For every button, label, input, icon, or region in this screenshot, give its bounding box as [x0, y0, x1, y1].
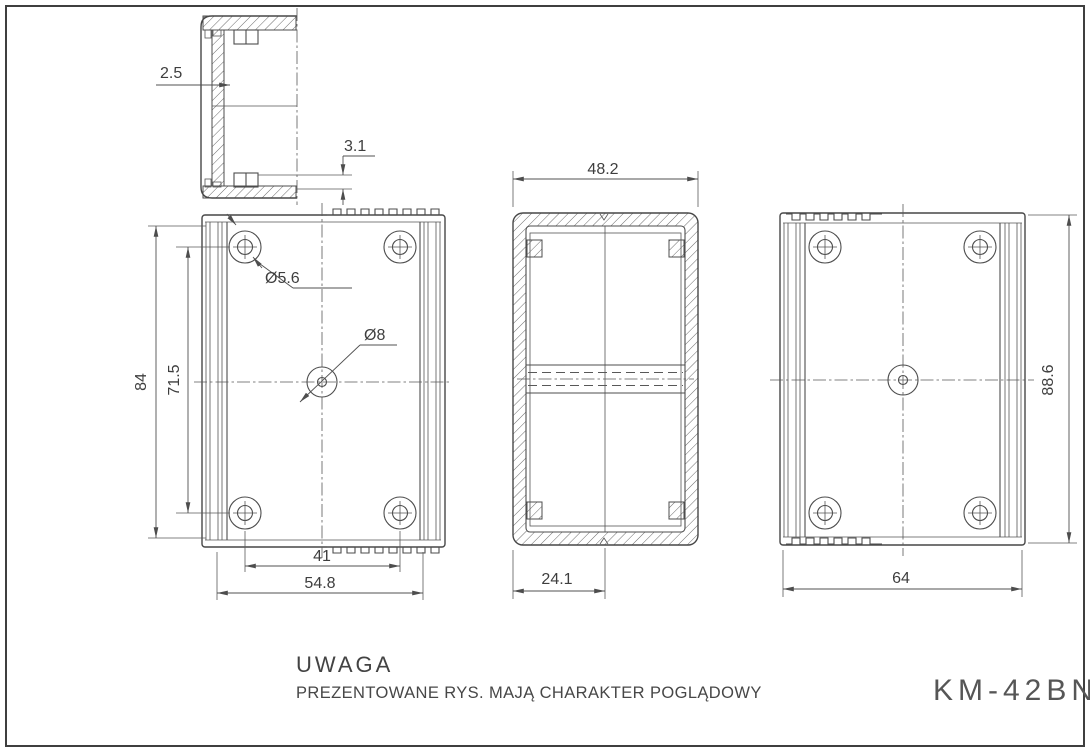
- dim-label: 41: [313, 548, 331, 565]
- internal-partition: [517, 365, 694, 393]
- side-ribs-left: [206, 222, 227, 540]
- dim-label: 54.8: [304, 575, 335, 592]
- vent-serration-bottom: [786, 538, 882, 544]
- model-number: KM-42BN: [933, 674, 1090, 707]
- dim-overall-height: 88.6: [1028, 215, 1077, 543]
- screw-boss: [527, 502, 542, 519]
- dim-base-to-center: 24.1: [513, 548, 605, 599]
- screw-boss: [669, 240, 684, 257]
- dim-label: 71.5: [166, 364, 183, 395]
- screw-boss: [669, 502, 684, 519]
- screw-hole: [384, 497, 416, 529]
- screw-hole: [964, 497, 996, 529]
- dim-label: Ø8: [364, 327, 385, 344]
- screw-hole: [384, 231, 416, 263]
- dim-hole-pitch-vertical: 71.5: [166, 247, 230, 513]
- dim-center-hole: Ø8: [300, 327, 397, 402]
- dim-overall-depth: 48.2: [513, 161, 698, 207]
- dim-label: 88.6: [1040, 364, 1057, 395]
- dim-label: Ø5.6: [265, 270, 300, 287]
- screw-hole: [229, 497, 261, 529]
- section-side-wall: [212, 30, 224, 186]
- side-ribs-right: [420, 222, 440, 540]
- screw-hole: [809, 497, 841, 529]
- dim-label: 84: [133, 373, 150, 391]
- note-title: UWAGA: [296, 652, 393, 677]
- technical-drawing-canvas: 2.5 3.1: [0, 0, 1090, 752]
- screw-hole: [229, 231, 261, 263]
- dim-corner-hole: Ø5.6: [227, 214, 352, 288]
- section-bottom-wall: [203, 186, 296, 198]
- side-section-view: 2.5 3.1: [156, 8, 375, 205]
- enclosure-outline: [780, 213, 1025, 545]
- vent-serration-top: [786, 214, 882, 220]
- dim-overall-width: 64: [783, 550, 1022, 597]
- screw-hole: [809, 231, 841, 263]
- dim-label: 64: [892, 570, 910, 587]
- section-lid-lip: [530, 233, 681, 526]
- dim-label: 2.5: [160, 65, 182, 82]
- drawing-sheet: 2.5 3.1: [0, 0, 1090, 752]
- section-top-wall: [203, 16, 296, 30]
- screw-hole: [964, 231, 996, 263]
- screw-boss: [527, 240, 542, 257]
- end-section-view: 48.2 24.1: [513, 161, 698, 599]
- dim-label: 24.1: [541, 571, 572, 588]
- dim-hole-pitch-horizontal: 41: [245, 531, 400, 572]
- note-body: PREZENTOWANE RYS. MAJĄ CHARAKTER POGLĄDO…: [296, 684, 762, 702]
- dim-label: 3.1: [344, 138, 366, 155]
- enclosure-outline: [202, 215, 445, 547]
- top-view: 88.6 64: [770, 204, 1077, 597]
- latch-nub: [205, 30, 211, 38]
- dim-label: 48.2: [587, 161, 618, 178]
- vent-serration-top: [327, 209, 440, 215]
- bottom-view: Ø5.6 Ø8 84 71.5 41: [133, 203, 452, 600]
